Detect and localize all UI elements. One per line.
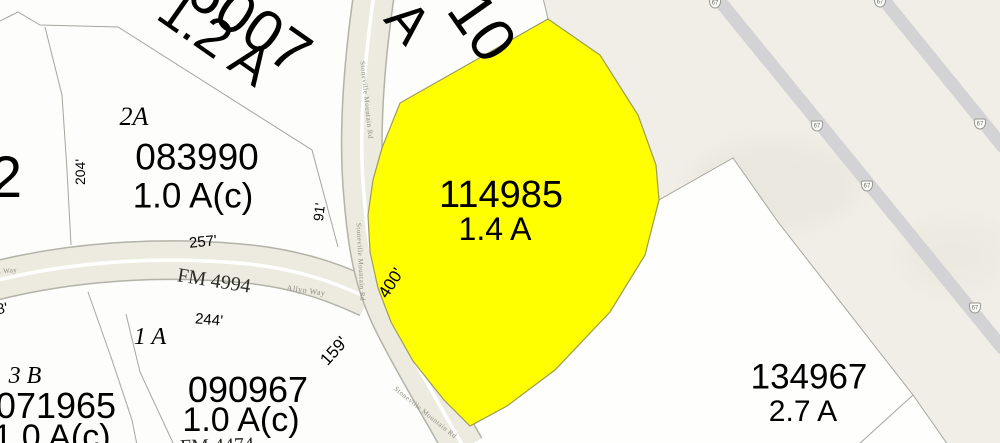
parcel-number-fragment-left: 2 <box>0 149 22 207</box>
highway-shield-number: 67 <box>977 121 984 127</box>
parcel-number-114985: 114985 <box>439 176 563 214</box>
parcel-map-viewport[interactable]: 086007 1.2 A '10 A 2 2A 083990 1.0 A(c) … <box>0 0 1000 443</box>
highway-shield-number: 67 <box>712 0 719 6</box>
parcel-acreage-090967: 1.0 A(c) <box>182 403 299 437</box>
highway-shield-number: 67 <box>877 0 884 5</box>
parcel-acreage-134967: 2.7 A <box>769 397 837 427</box>
measurement-257ft: 257' <box>188 233 217 251</box>
parcel-acreage-083990: 1.0 A(c) <box>133 179 254 214</box>
parcel-number-083990: 083990 <box>135 139 258 176</box>
parcel-acreage-071965: 1.0 A(c) <box>0 420 111 443</box>
parcel-acreage-114985: 1.4 A <box>459 213 532 245</box>
measurement-91ft: 91' <box>311 202 327 222</box>
highway-shield-number: 67 <box>814 123 821 129</box>
highway-shield-number: 67 <box>972 305 979 311</box>
lot-label-1a: 1 A <box>134 325 166 349</box>
measurement-204ft: 204' <box>73 159 87 185</box>
highway-shield-number: 67 <box>864 183 871 189</box>
lot-label-2a: 2A <box>120 104 149 130</box>
road-label-fm-fragment: FM 4474 <box>180 435 255 443</box>
parcel-number-134967: 134967 <box>751 360 868 395</box>
measurement-244ft: 244' <box>194 311 223 328</box>
